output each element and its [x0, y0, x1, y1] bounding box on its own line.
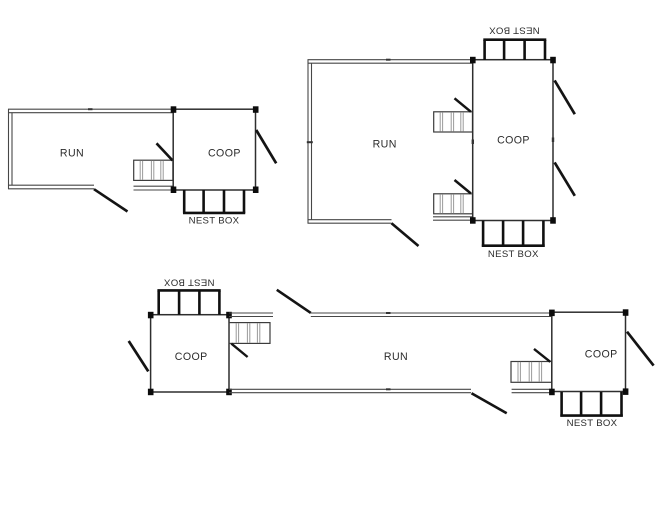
- svg-text:COOP: COOP: [208, 147, 241, 159]
- svg-text:NEST BOX: NEST BOX: [163, 277, 214, 288]
- svg-text:RUN: RUN: [384, 351, 408, 363]
- svg-text:RUN: RUN: [373, 138, 397, 150]
- svg-text:NEST BOX: NEST BOX: [567, 418, 618, 429]
- svg-text:COOP: COOP: [175, 351, 208, 363]
- svg-text:NEST BOX: NEST BOX: [489, 25, 540, 36]
- svg-text:NEST BOX: NEST BOX: [488, 249, 539, 260]
- svg-text:COOP: COOP: [585, 348, 618, 360]
- svg-text:COOP: COOP: [497, 135, 530, 147]
- svg-text:RUN: RUN: [60, 147, 84, 159]
- svg-text:NEST BOX: NEST BOX: [189, 216, 240, 227]
